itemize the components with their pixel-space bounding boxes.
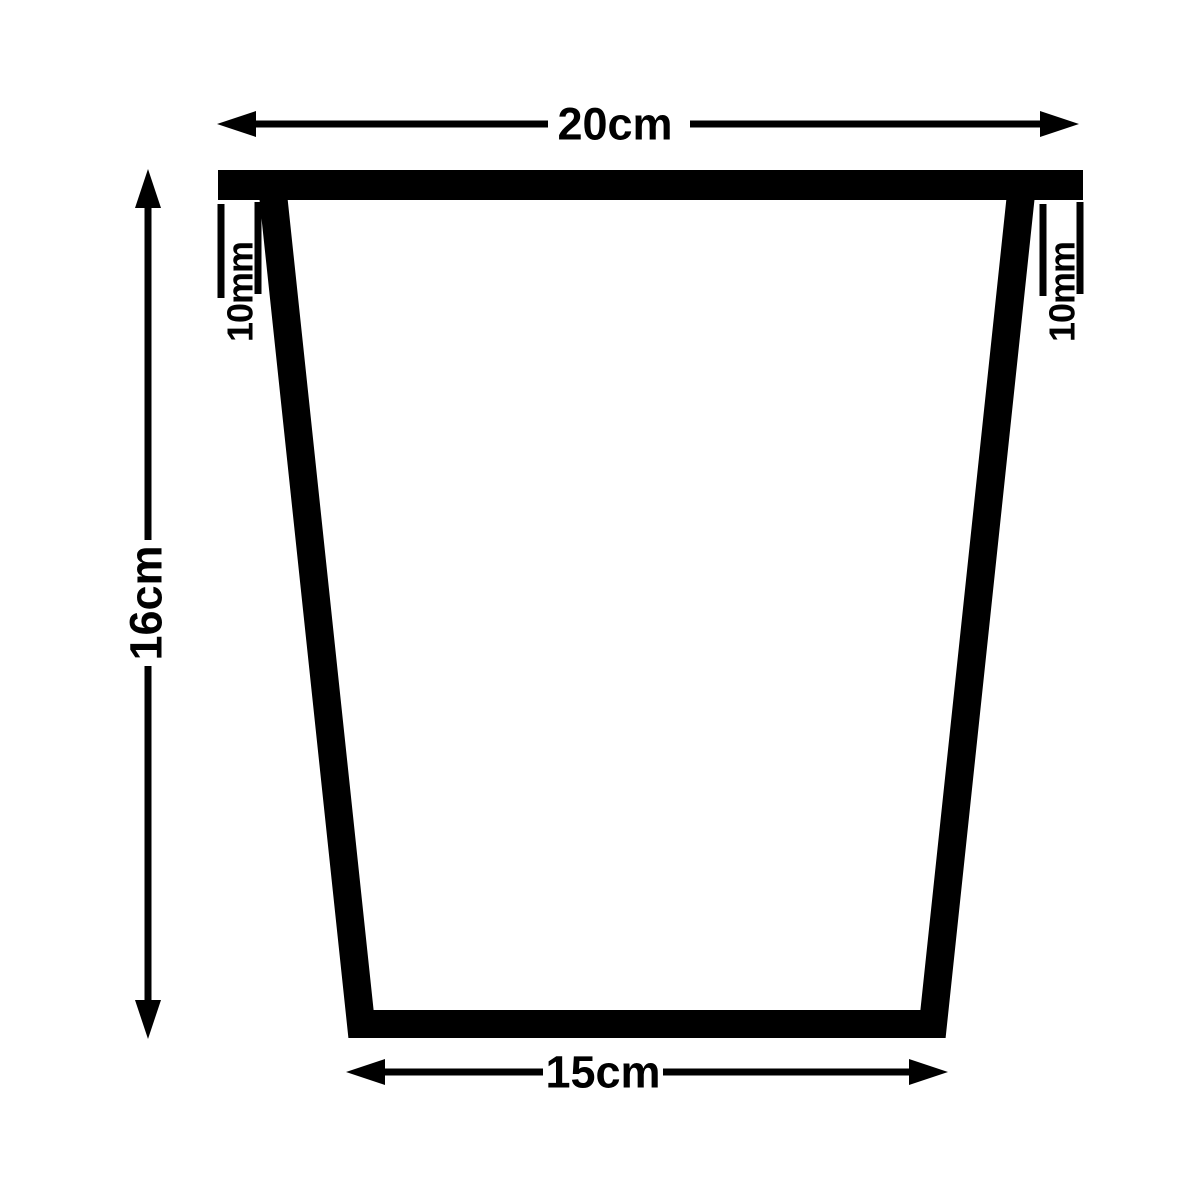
diagram-canvas: 20cm 16cm 15cm 10mm 10mm (0, 0, 1200, 1200)
top-width-label: 20cm (557, 99, 672, 150)
pot-dimension-drawing: 20cm 16cm 15cm 10mm 10mm (0, 0, 1200, 1200)
height-label: 16cm (121, 545, 172, 660)
arrow-up-icon (135, 169, 161, 208)
height-dimension: 16cm (121, 169, 172, 1039)
wall-thickness-right-label: 10mm (1042, 242, 1083, 342)
arrow-left-icon (346, 1059, 385, 1085)
arrow-left-icon (217, 111, 256, 137)
arrow-right-icon (1040, 111, 1079, 137)
container-outline (218, 170, 1083, 1024)
wall-thickness-right-dimension: 10mm (1042, 202, 1083, 342)
container-walls-and-base (273, 194, 1021, 1024)
wall-thickness-left-label: 10mm (220, 242, 261, 342)
arrow-right-icon (909, 1059, 948, 1085)
bottom-width-dimension: 15cm (346, 1047, 948, 1098)
top-width-dimension: 20cm (217, 99, 1079, 150)
arrow-down-icon (135, 1000, 161, 1039)
container-rim (218, 170, 1083, 200)
bottom-width-label: 15cm (545, 1047, 660, 1098)
wall-thickness-left-dimension: 10mm (220, 202, 261, 342)
